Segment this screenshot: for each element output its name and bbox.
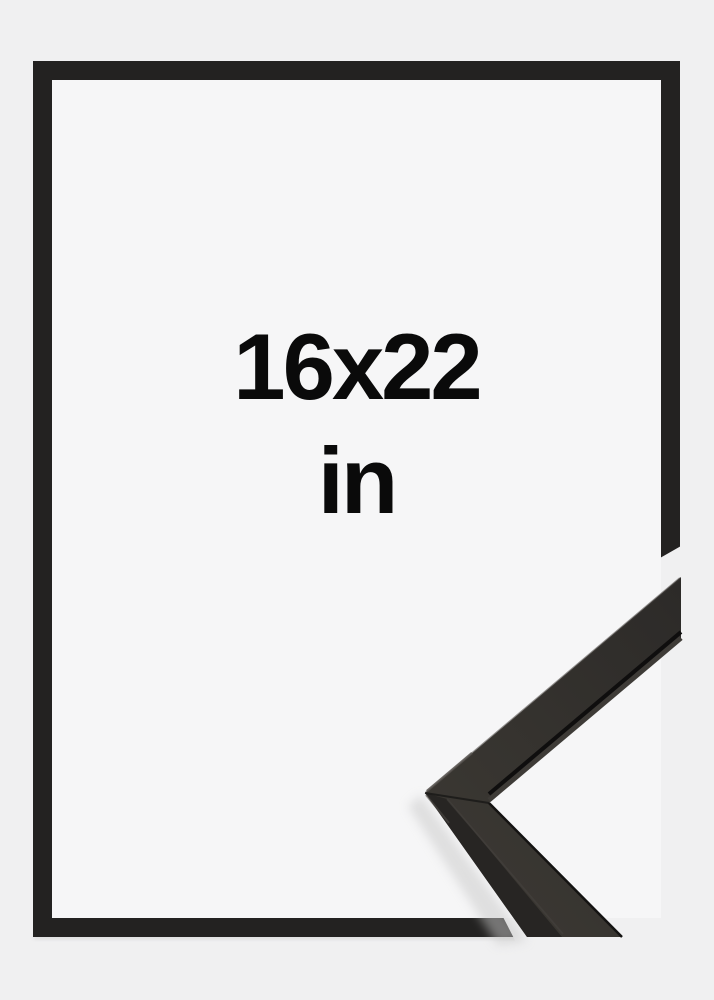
- size-label-line1: 16x22: [52, 310, 661, 424]
- size-label-line2: in: [52, 424, 661, 538]
- product-image: 16x22 in: [0, 0, 714, 1000]
- size-label: 16x22 in: [52, 310, 661, 538]
